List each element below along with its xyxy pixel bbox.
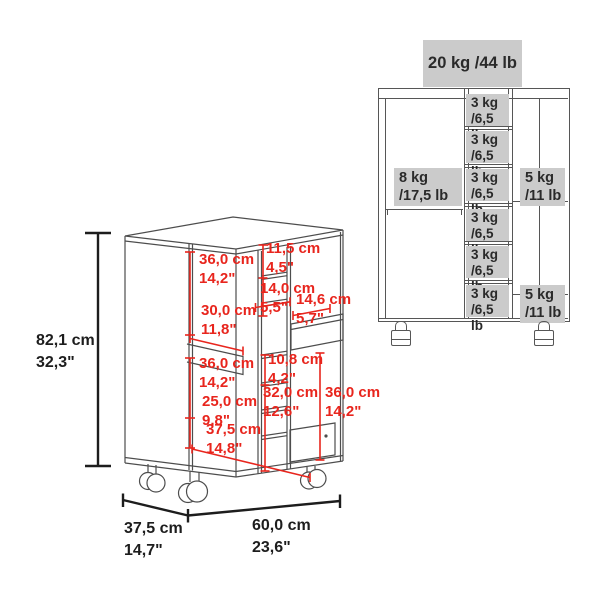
dim-overall-depth: 37,5 cm14,7"	[124, 518, 183, 562]
left-panel-line	[385, 98, 386, 318]
dim-drawer-width: 14,6 cm5,7"	[296, 290, 351, 328]
product-dimension-sheet: 36,0 cm14,2" 30,0 cm11,8" 11,5 cm4,5" 14…	[0, 0, 600, 600]
cubby-capacity-2: 3 kg/6,5 lb	[466, 131, 509, 163]
width-dimension-line	[188, 495, 340, 516]
dim-overall-height: 82,1 cm32,3"	[36, 330, 95, 374]
total-capacity-label: 20 kg /44 lb	[423, 40, 522, 87]
cubby-capacity-6: 3 kg/6,5 lb	[466, 285, 509, 317]
dim-shelf-depth: 30,0 cm11,8"	[201, 301, 256, 339]
dim-line-left-lower	[185, 358, 195, 448]
dim-line-left-upper-36	[185, 252, 195, 335]
caster-wheel-left	[140, 464, 166, 492]
weight-capacity-diagram: 20 kg /44 lb	[378, 40, 572, 350]
divider-line	[512, 89, 513, 318]
left-compartment-capacity: 8 kg /17,5 lb	[394, 168, 462, 206]
caster-wheel-front-right	[532, 321, 556, 348]
right-shelf-capacity-2: 5 kg/11 lb	[520, 285, 565, 323]
dim-left-lower-height: 36,0 cm14,2"	[199, 354, 254, 392]
compartment-rail	[386, 209, 463, 210]
cubby-capacity-5: 3 kg/6,5 lb	[466, 246, 509, 278]
dim-overall-width: 60,0 cm23,6"	[252, 515, 311, 559]
caster-wheel-front	[179, 471, 208, 503]
cabinet-front-view: 8 kg /17,5 lb 3 kg/6,5 lb 3 kg/6,5 lb 3 …	[378, 88, 570, 322]
dim-top-cubby-height: 11,5 cm4,5"	[266, 239, 320, 277]
dim-lower-column-height: 32,0 cm12,6"	[263, 383, 318, 421]
caster-wheels	[140, 464, 327, 503]
dim-interior-depth: 37,5 cm14,8"	[206, 420, 261, 458]
cubby-capacity-4: 3 kg/6,5 lb	[466, 209, 509, 241]
cubby-capacity-3: 3 kg/6,5 lb	[466, 169, 509, 201]
dim-right-lower-height: 36,0 cm14,2"	[325, 383, 380, 421]
cubby-capacity-1: 3 kg/6,5 lb	[466, 94, 509, 126]
caster-wheel-front-left	[389, 321, 413, 348]
lower-side-panel	[290, 423, 335, 462]
rail-end-tick	[461, 209, 462, 215]
dim-left-upper-height: 36,0 cm14,2"	[199, 250, 254, 288]
rail-end-tick	[387, 209, 388, 215]
right-shelf-capacity-1: 5 kg/11 lb	[520, 168, 565, 206]
caster-wheel-right	[301, 466, 327, 489]
